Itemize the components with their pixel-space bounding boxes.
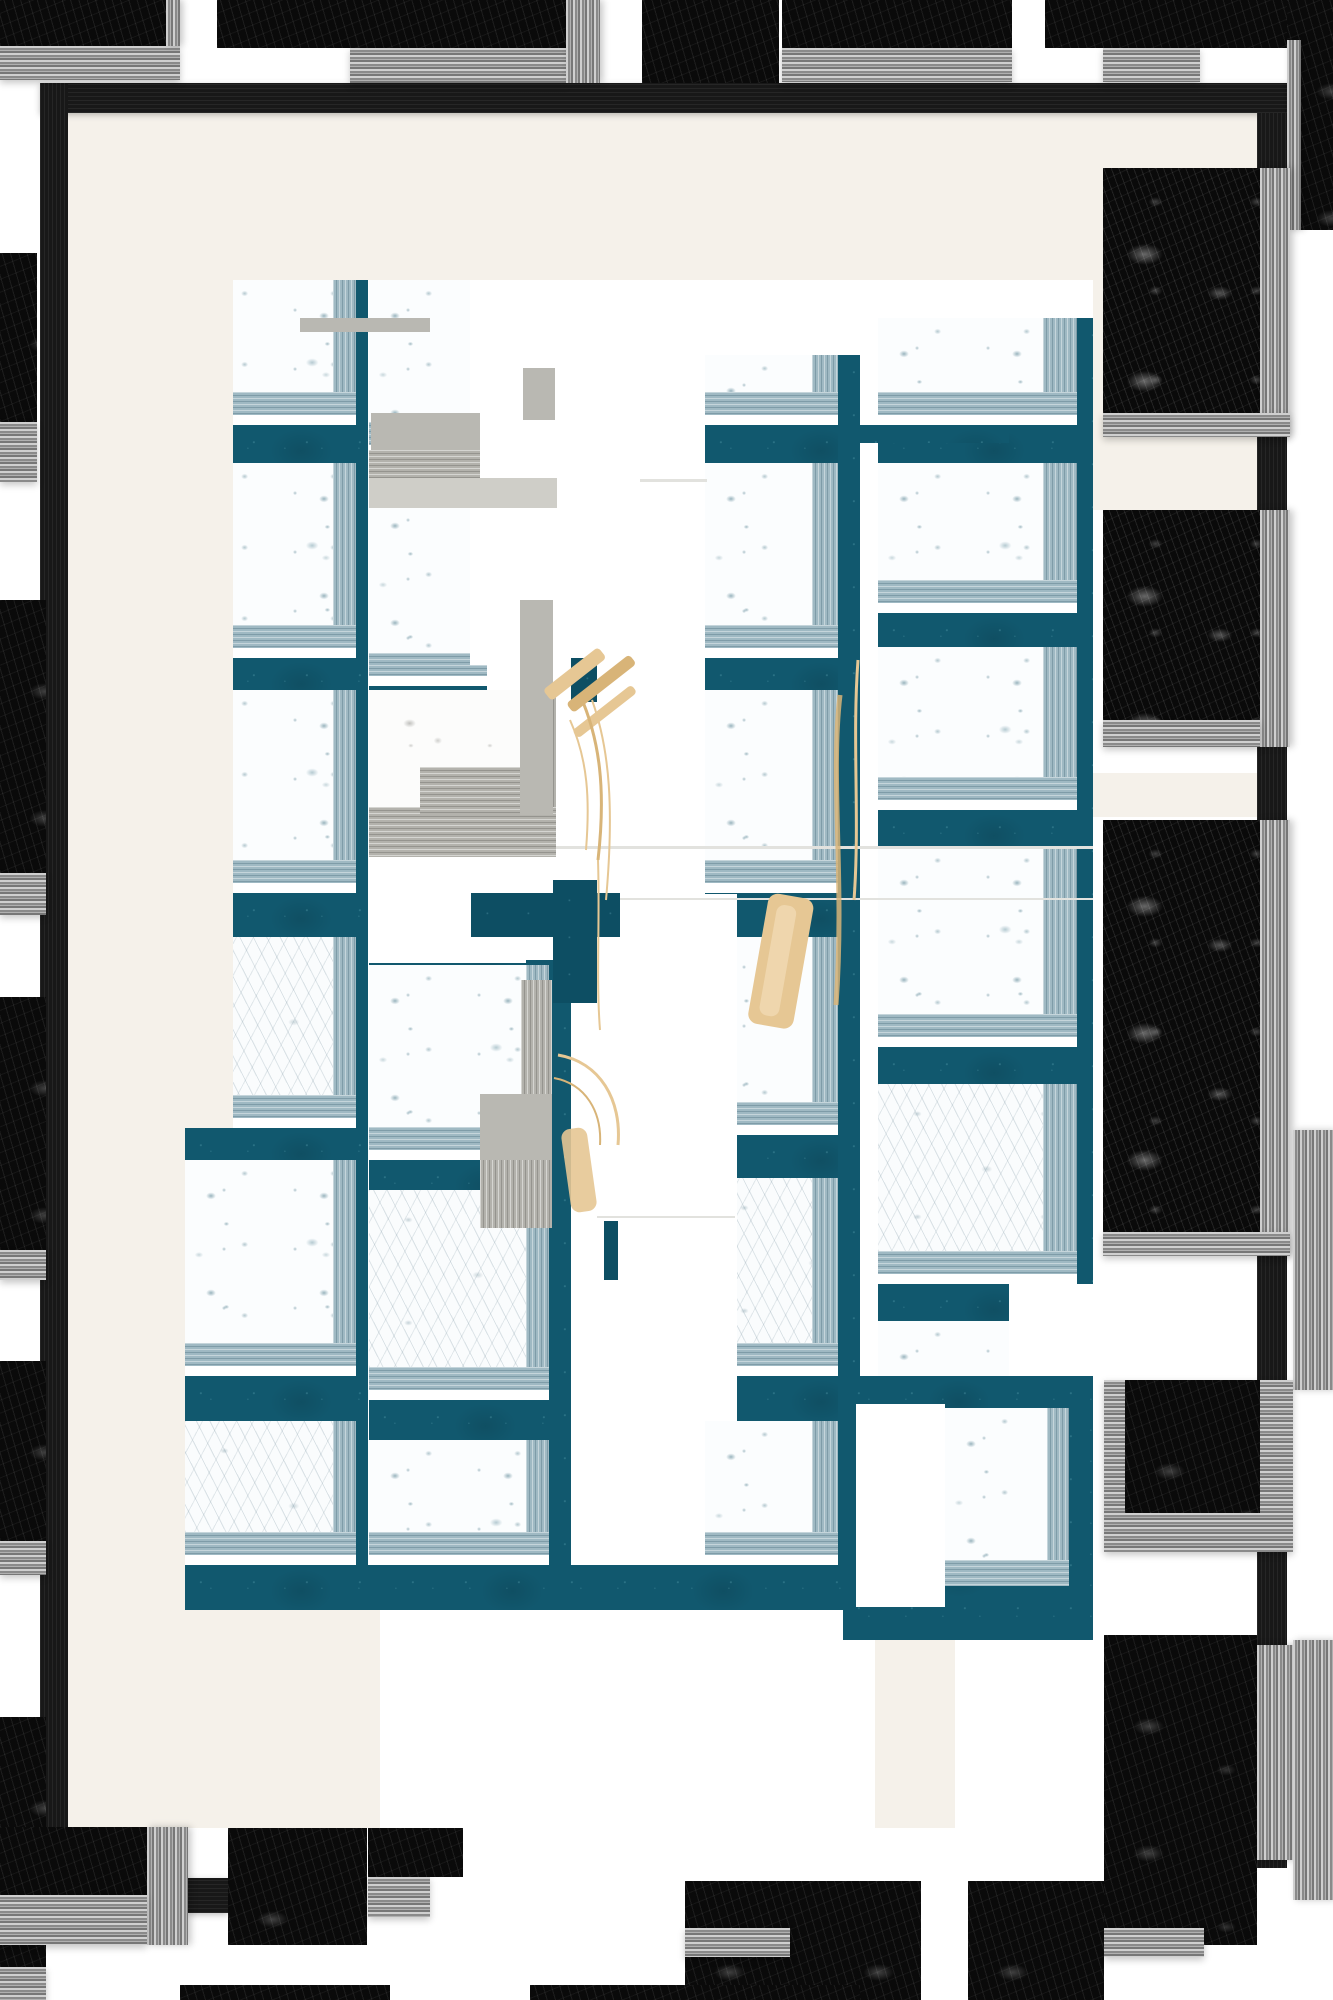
art-c4-r5-glass [878,1084,1043,1251]
art-c1-r4-mold-right [333,937,356,1118]
top-photo-1-frame-bottom [0,46,180,80]
right-photo-5 [1104,1635,1257,1945]
right-photo-3 [1103,820,1260,1232]
art-c3-band-1 [705,425,838,463]
art-c1-r6-mold-bottom [185,1532,356,1555]
right-photo-3-frame-bottom [1103,1232,1290,1256]
glitch-teal-block-1 [571,658,597,702]
bottom-sliver-1 [180,1985,390,2000]
top-photo-1 [0,0,166,46]
bottom-photo-3 [368,1828,463,1877]
glitch-teal-cross-v [553,880,597,1003]
art-c3-r2-glass [705,463,812,625]
bottom-photo-1-frame-bottom [0,1895,147,1945]
top-photo-3 [642,0,779,83]
seam-line-2 [556,846,1093,849]
art-c3-r3-mold-bottom [705,860,838,883]
glitch-gray-rect-4 [523,368,555,420]
art-c3-r5-mold-right [812,1178,838,1366]
art-c4-r5-mold-bottom [878,1251,1077,1274]
seam-line-1 [640,479,707,482]
art-c4-r4-mold-bottom [878,1014,1077,1037]
left-photo-3 [0,997,46,1250]
art-c3-r2-mold-right [812,463,838,648]
art-bigcell-glass [945,1408,1047,1560]
edge-frame-fragment-2 [1293,1640,1333,1900]
top-photo-5-frame-bottom [1103,48,1200,82]
art-c1-r5-mold-bottom [185,1343,356,1366]
bottom-photo-5 [968,1881,1104,2000]
seam-line-3 [620,898,1093,900]
seam-line-4 [597,1216,735,1218]
art-c3-band-2 [705,658,838,690]
art-c1-r3-mold-right [333,690,356,883]
art-bigcell-mold-bottom [945,1560,1069,1586]
art-c4-r1-mold-bottom [878,392,1077,415]
art-c4-r1-glass [878,318,1043,392]
left-photo-4-frame [0,1541,46,1575]
right-photo-4 [1125,1380,1260,1513]
left-photo-6-frame [0,1967,46,2000]
glitch-gray-bar-v [520,600,553,815]
art-c4-r3-glass [878,647,1043,777]
art-c3-r1-glass [705,355,812,392]
art-c4-band-3 [878,810,1077,847]
art-c4-r4-glass [878,847,1043,1014]
left-photo-4 [0,1361,46,1541]
top-photo-2 [217,0,566,48]
glitch-gray-rect-1 [371,413,480,450]
glitch-gray-rect-2 [369,478,557,508]
left-photo-2-frame [0,873,46,915]
art-c2-r6-glass [369,1440,526,1532]
art-c4-r4-mold-right [1043,847,1077,1037]
bottom-photo-1-frame-right [147,1827,188,1945]
art-c4-r2-mold-bottom [878,580,1077,603]
art-c1-r5-mold-right [333,1160,356,1366]
top-photo-5 [1045,0,1287,48]
glitch-gray-mold-1 [369,450,480,478]
mat-bottom-strip [875,1610,955,1828]
art-c3-r6-mold-bottom [705,1532,838,1555]
top-photo-2-frame-right [566,0,600,83]
right-photo-5-frame-bottom [1104,1928,1204,1957]
right-photo-2 [1103,510,1260,720]
left-photo-3-frame [0,1250,46,1280]
left-photo-5 [0,1717,46,1827]
art-c3-r6-glass [705,1421,812,1532]
art-c2-r5-mold-bottom [369,1367,549,1390]
art-c3-r3-glass [705,690,812,860]
edge-frame-fragment-1 [1293,1130,1333,1390]
glitch-teal-cross-h [471,893,620,937]
bottom-photo-4-frame [685,1928,790,1957]
right-photo-2-frame-bottom [1103,720,1260,747]
art-c3-r4-mold-right [812,937,838,1125]
art-c1-band-4 [185,1128,368,1160]
collage-canvas [0,0,1333,2000]
mat-right-strip [1093,773,1257,817]
art-c4-band-2 [878,613,1077,647]
glitch-cream-sliver [185,280,233,1128]
top-photo-1-frame-right [166,0,180,46]
art-c1-band-5 [185,1376,368,1421]
art-c4-r5-mold-right [1043,1084,1077,1274]
art-c4-band-4 [878,1047,1077,1084]
art-c1-r2-mold-right [333,463,356,648]
top-photo-4-frame-bottom [782,48,1012,82]
top-photo-4 [782,0,1012,48]
art-c2-band-5 [369,1400,549,1440]
glitch-teal-block-2 [604,1221,618,1280]
art-c3-r2-mold-bottom [705,625,838,648]
top-photo-2-frame-bottom [350,48,566,83]
mat-left [68,280,185,1828]
art-bigcell-white-inset [856,1404,945,1607]
right-photo-1-frame-right [1260,168,1290,437]
art-c4-r2-glass [878,463,1043,580]
bottom-sliver-2 [530,1985,860,2000]
right-photo-3-frame-right [1260,820,1290,1256]
left-photo-1-frame [0,422,37,482]
glitch-gray-strip-1 [300,318,430,332]
left-photo-2 [0,600,46,873]
mat-bottom-left [185,1610,380,1828]
glitch-white-bar-3 [597,894,737,1421]
art-c1-r6-glass [185,1421,333,1532]
art-teal-extension [860,425,1009,443]
bottom-photo-3-frame [368,1877,430,1917]
left-photo-1 [0,253,37,422]
bottom-photo-1 [0,1827,147,1895]
mat-top [68,113,1257,280]
glitch-gray-mold-4 [480,1160,552,1228]
frame-bottom-piece [188,1878,228,1913]
art-c4-r3-mold-bottom [878,777,1077,800]
right-photo-2-frame-right [1260,510,1290,747]
art-c3-r3-mold-right [812,690,838,883]
right-photo-1 [1103,168,1260,413]
right-photo-1-frame-bottom [1103,413,1290,437]
bottom-photo-2 [228,1828,367,1945]
frame-top-bar [40,83,1293,113]
art-c2-r6-mold-bottom [369,1532,549,1555]
art-c3-r1-mold-bottom [705,392,838,415]
right-photo-5-frame-right [1257,1645,1293,1860]
art-c1-r5-glass [185,1160,333,1343]
glitch-gray-rect-3 [480,1094,552,1160]
